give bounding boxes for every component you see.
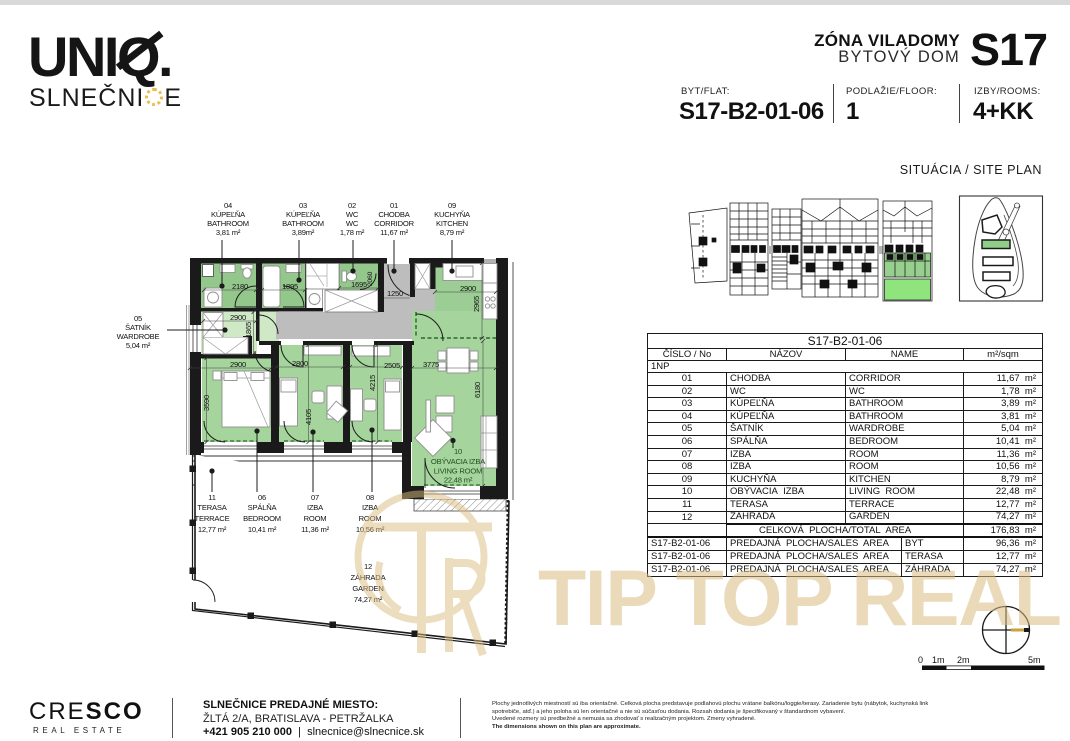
svg-text:12,77 m²: 12,77 m²: [198, 525, 227, 534]
svg-text:WC: WC: [346, 210, 359, 219]
svg-text:12: 12: [364, 562, 372, 571]
svg-text:IZBA: IZBA: [307, 503, 324, 512]
svg-text:2900: 2900: [460, 284, 476, 293]
svg-text:1m: 1m: [932, 655, 945, 665]
svg-text:11,36 m²: 11,36 m²: [301, 525, 329, 534]
svg-text:1895: 1895: [282, 282, 298, 291]
svg-text:ROOM: ROOM: [359, 514, 382, 523]
svg-text:2800: 2800: [292, 359, 308, 368]
svg-text:11: 11: [208, 493, 215, 502]
svg-text:06: 06: [258, 493, 266, 502]
svg-text:TERASA: TERASA: [197, 503, 227, 512]
svg-text:4215: 4215: [368, 375, 377, 391]
svg-text:6180: 6180: [473, 382, 482, 398]
svg-text:03: 03: [299, 201, 307, 210]
svg-text:3,89m²: 3,89m²: [292, 228, 315, 237]
svg-text:02: 02: [348, 201, 356, 210]
svg-text:10,56 m²: 10,56 m²: [356, 525, 385, 534]
svg-text:ROOM: ROOM: [304, 514, 327, 523]
svg-text:KITCHEN: KITCHEN: [436, 219, 468, 228]
svg-text:KUCHYŇA: KUCHYŇA: [434, 210, 471, 219]
svg-text:5m: 5m: [1028, 655, 1041, 665]
svg-text:10: 10: [454, 447, 462, 456]
svg-text:ZÁHRADA: ZÁHRADA: [351, 573, 387, 582]
svg-text:2900: 2900: [230, 313, 246, 322]
svg-text:1250: 1250: [387, 289, 403, 298]
svg-text:1865: 1865: [244, 322, 253, 338]
svg-text:2180: 2180: [232, 282, 248, 291]
svg-text:8,79 m²: 8,79 m²: [440, 228, 465, 237]
svg-text:74,27 m²: 74,27 m²: [354, 595, 383, 604]
svg-text:2965: 2965: [472, 296, 481, 312]
svg-text:2505: 2505: [384, 361, 400, 370]
svg-text:1695: 1695: [351, 280, 367, 289]
svg-text:KÚPEĽŇA: KÚPEĽŇA: [211, 210, 246, 219]
svg-text:BATHROOM: BATHROOM: [282, 219, 324, 228]
svg-text:10,41 m²: 10,41 m²: [248, 525, 277, 534]
svg-text:GARDEN: GARDEN: [352, 584, 383, 593]
svg-text:OBÝVACIA IZBA: OBÝVACIA IZBA: [431, 457, 486, 466]
svg-text:LIVING ROOM: LIVING ROOM: [434, 467, 482, 476]
svg-text:3775: 3775: [423, 360, 439, 369]
svg-text:09: 09: [448, 201, 456, 210]
svg-text:2900: 2900: [230, 360, 246, 369]
svg-text:KÚPEĽŇA: KÚPEĽŇA: [286, 210, 321, 219]
svg-text:0: 0: [918, 655, 923, 665]
svg-text:WC: WC: [346, 219, 359, 228]
svg-text:BATHROOM: BATHROOM: [207, 219, 249, 228]
svg-text:IZBA: IZBA: [362, 503, 379, 512]
svg-text:04: 04: [224, 201, 232, 210]
svg-text:SPÁLŇA: SPÁLŇA: [248, 503, 278, 512]
svg-text:07: 07: [311, 493, 319, 502]
svg-text:CHODBA: CHODBA: [378, 210, 410, 219]
svg-text:22,48 m²: 22,48 m²: [444, 476, 473, 485]
svg-text:05: 05: [134, 314, 142, 323]
svg-text:08: 08: [366, 493, 374, 502]
svg-text:CORRIDOR: CORRIDOR: [374, 219, 414, 228]
svg-text:2060: 2060: [367, 271, 374, 286]
svg-text:5,04 m²: 5,04 m²: [126, 341, 151, 350]
svg-text:1,78 m²: 1,78 m²: [340, 228, 365, 237]
svg-text:11,67 m²: 11,67 m²: [380, 228, 408, 237]
svg-text:2m: 2m: [957, 655, 970, 665]
svg-text:ŠATNÍK: ŠATNÍK: [125, 323, 151, 332]
svg-text:TERRACE: TERRACE: [195, 514, 230, 523]
svg-text:3,81 m²: 3,81 m²: [216, 228, 241, 237]
svg-text:BEDROOM: BEDROOM: [243, 514, 281, 523]
svg-text:01: 01: [390, 201, 398, 210]
svg-text:WARDROBE: WARDROBE: [117, 332, 160, 341]
